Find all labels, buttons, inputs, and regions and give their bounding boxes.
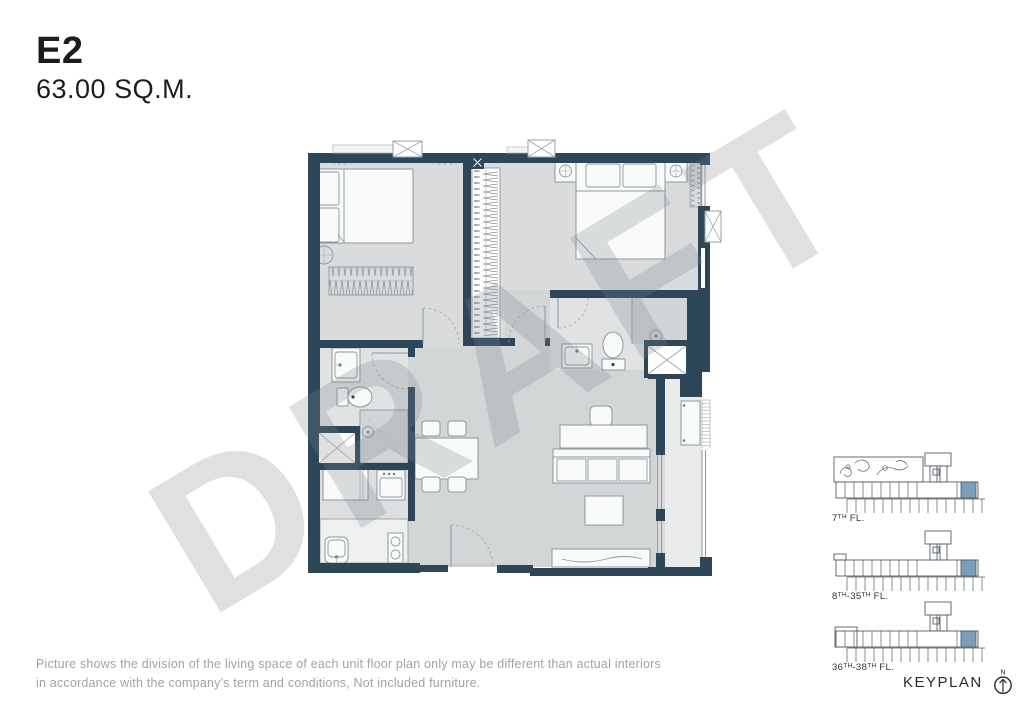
keyplan-floor-label: 7ᵀᴴ FL. xyxy=(832,513,1024,524)
north-icon: N xyxy=(992,668,1014,696)
unit-code: E2 xyxy=(36,30,83,73)
floor-plan-page: E2 63.00 SQ.M. xyxy=(0,0,1024,724)
chair-icon xyxy=(422,421,440,436)
left-wing xyxy=(834,554,846,560)
keyplan-36th-38th-floor: 36ᵀᴴ-38ᵀᴴ FL. xyxy=(832,601,1024,673)
floor-plan xyxy=(300,138,725,583)
highlighted-unit xyxy=(961,482,976,498)
louver-icon xyxy=(702,400,710,448)
unit-area: 63.00 SQ.M. xyxy=(36,74,193,105)
toilet-icon xyxy=(602,332,625,370)
garden-swirls-icon xyxy=(840,460,908,476)
keyplan-7th-floor: 7ᵀᴴ FL. xyxy=(832,452,1024,524)
stove-icon xyxy=(388,533,403,563)
coffee-table-icon xyxy=(585,496,623,525)
tower-core xyxy=(925,602,951,631)
washer-icon xyxy=(648,346,686,374)
tower-core xyxy=(925,453,951,482)
desk-icon xyxy=(560,425,647,448)
oven-icon xyxy=(377,470,405,500)
bed-icon xyxy=(316,169,413,243)
washer-icon xyxy=(319,433,355,463)
fridge-icon xyxy=(323,469,368,500)
dining-table-icon xyxy=(415,438,478,479)
keyplan-8th-35th-floor: 8ᵀᴴ-35ᵀᴴ FL. xyxy=(832,530,1024,602)
balcony-railing xyxy=(702,450,706,562)
north-label: N xyxy=(1000,669,1005,676)
highlighted-unit xyxy=(961,560,976,576)
bedroom-2 xyxy=(315,161,413,295)
bed-icon xyxy=(576,158,665,259)
closet-hatch-icon xyxy=(690,163,702,207)
toilet-icon xyxy=(337,387,372,407)
desk-chair-icon xyxy=(590,406,612,426)
chair-icon xyxy=(422,477,440,492)
tv-console-icon xyxy=(552,549,650,567)
highlighted-unit xyxy=(961,631,976,647)
keyplan-legend: KEYPLAN N xyxy=(903,668,1014,696)
amenity-deck xyxy=(834,457,923,482)
tower-core xyxy=(925,531,951,560)
disclaimer-line-1: Picture shows the division of the living… xyxy=(36,655,696,674)
disclaimer: Picture shows the division of the living… xyxy=(36,655,696,693)
chair-icon xyxy=(448,421,466,436)
ac-unit-icon xyxy=(681,401,700,445)
keyplan-title: KEYPLAN xyxy=(903,674,983,691)
chair-icon xyxy=(448,477,466,492)
disclaimer-line-2: in accordance with the company's term an… xyxy=(36,674,696,693)
sofa-icon xyxy=(553,449,650,483)
